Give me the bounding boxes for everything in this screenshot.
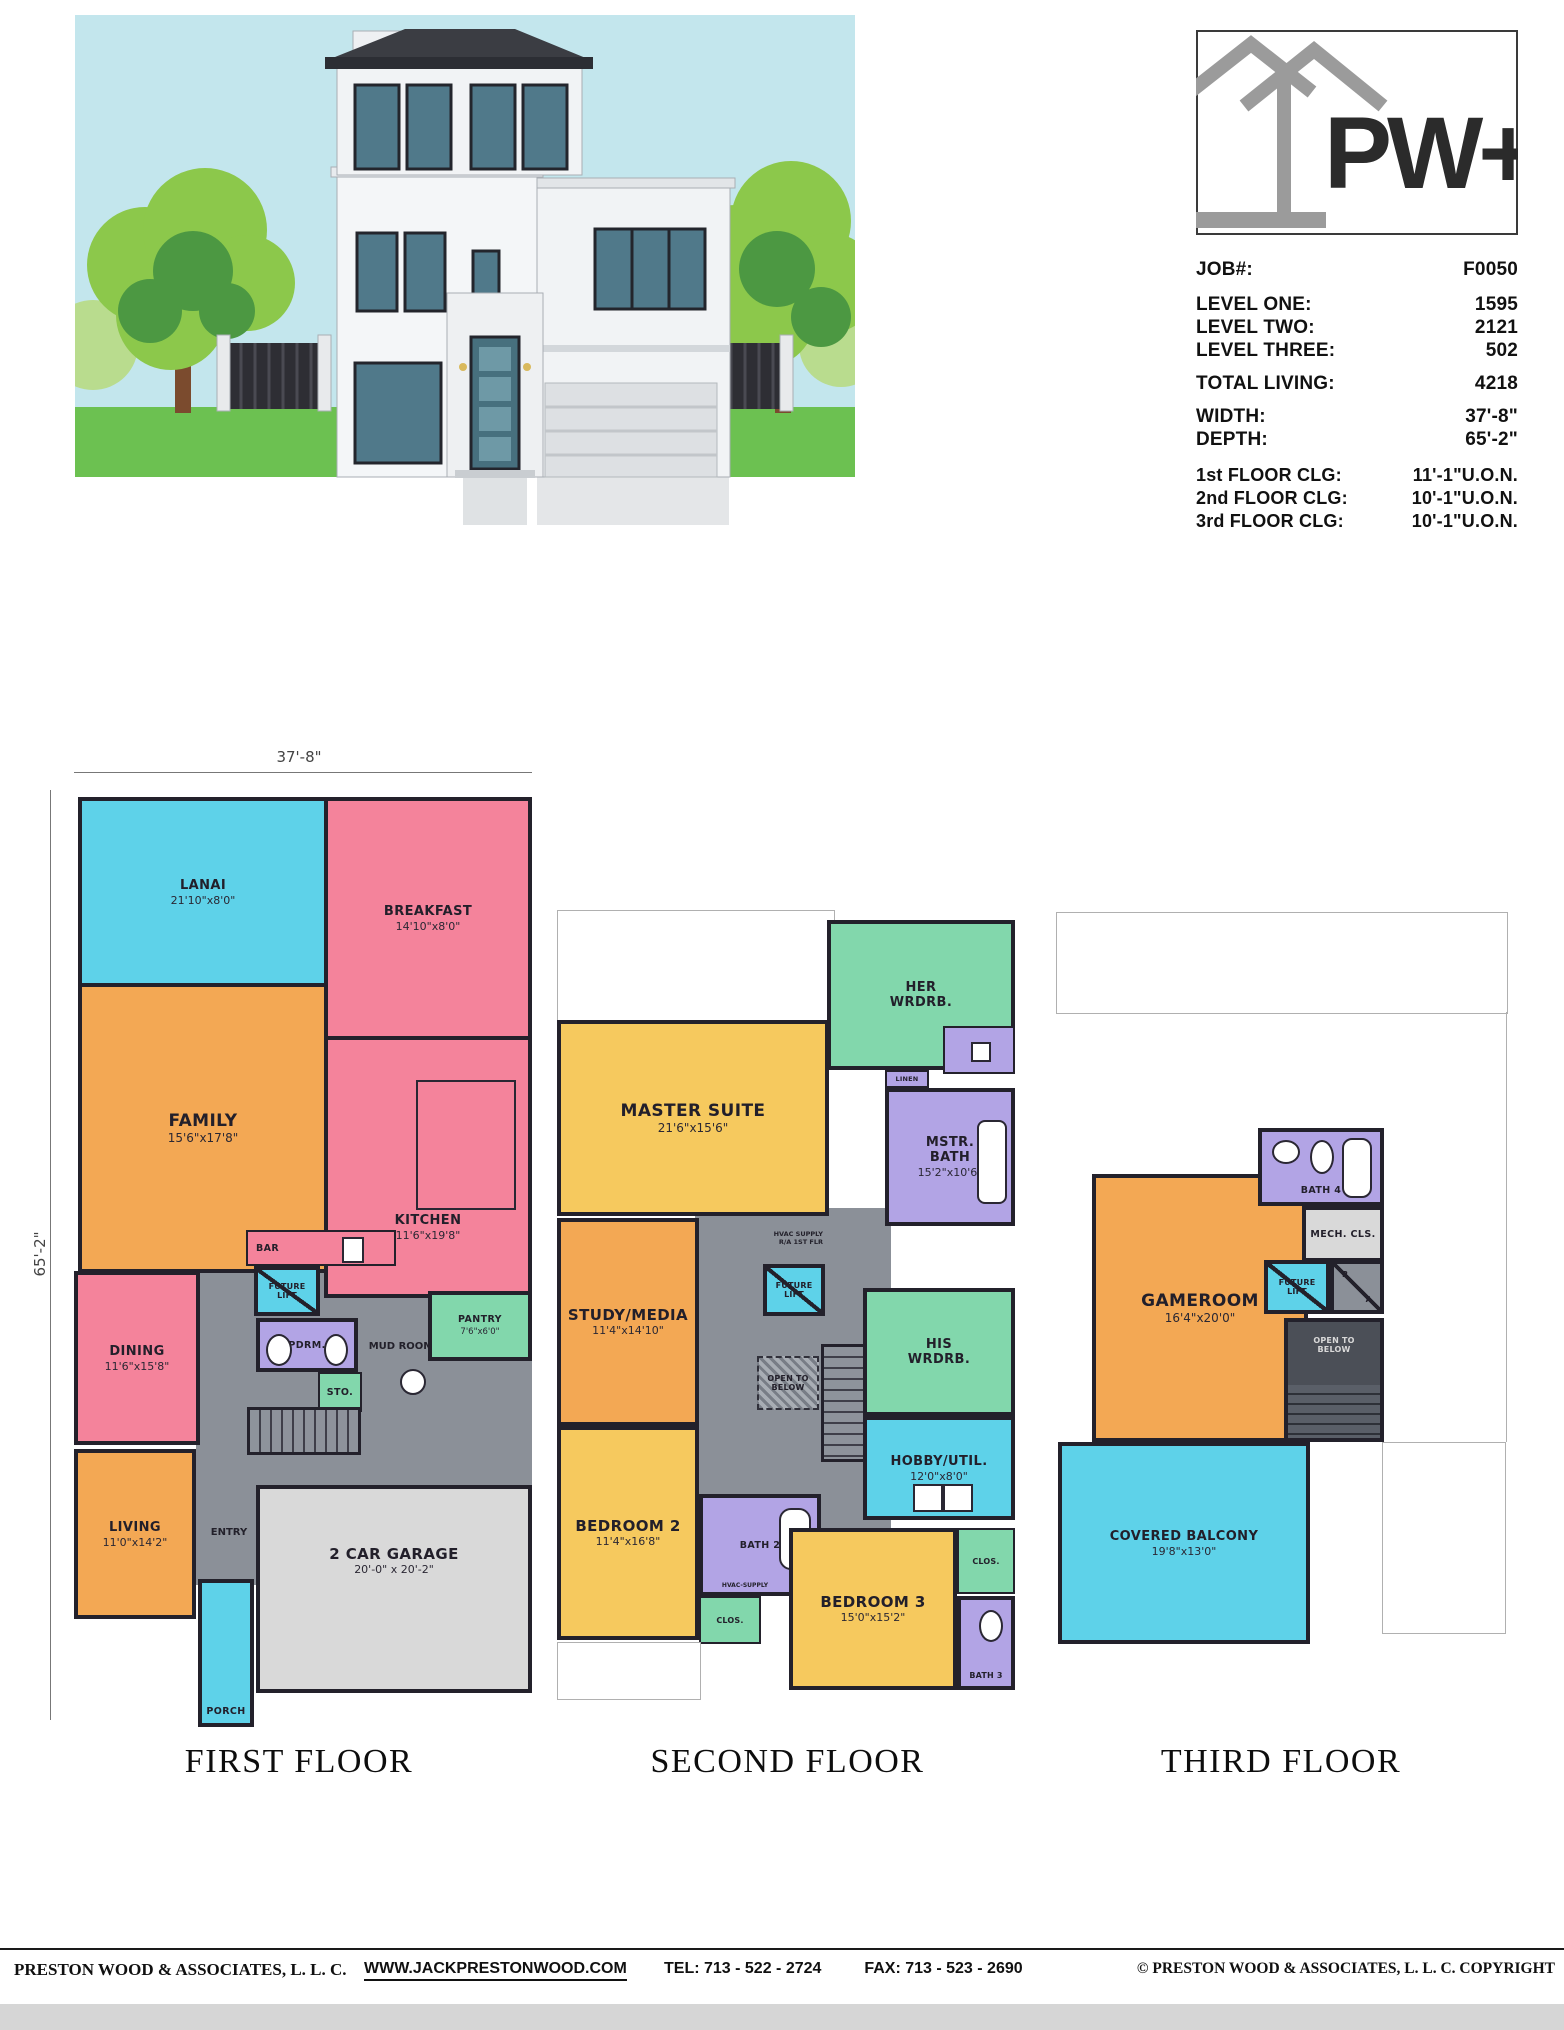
powder-sink [266, 1334, 292, 1366]
first-floor-depth-dimline [50, 790, 51, 1720]
footer-website-link[interactable]: WWW.JACKPRESTONWOOD.COM [364, 1960, 627, 1981]
room-future-lift-3: FUTURE LIFT [1264, 1260, 1330, 1314]
window-first [355, 363, 441, 463]
entry-label: ENTRY [200, 1527, 258, 1539]
level-two-row: LEVEL TWO:2121 [1196, 316, 1518, 339]
stair-treads [1288, 1385, 1380, 1438]
bath4-sink [1272, 1140, 1300, 1164]
room-covered-balcony: COVERED BALCONY 19'8"x13'0" [1058, 1442, 1310, 1644]
second-floor-plan: HER WRDRB. LINEN MSTR. BATH 15'2"x10'6" … [555, 908, 1020, 1703]
hvac-supply2-label: HVAC-SUPPLY [705, 1580, 785, 1592]
walkway [463, 477, 527, 525]
first-floor-width-dim: 37'-8" [60, 748, 538, 766]
job-info-block: JOB#:F0050 LEVEL ONE:1595 LEVEL TWO:2121… [1196, 258, 1518, 533]
footer-copyright: © PRESTON WOOD & ASSOCIATES, L. L. C. CO… [1050, 1960, 1555, 1978]
first-floor-plan: LANAI 21'10"x8'0" BREAKFAST 14'10"x8'0" … [60, 785, 538, 1735]
room-linen: LINEN [885, 1070, 929, 1088]
sconce-right [523, 363, 531, 371]
mstr-shower [943, 1026, 1015, 1074]
third-floor-plan: GAMEROOM 16'4"x20'0" BATH 4 MECH. CLS. F… [1050, 908, 1512, 1703]
room-bar: BAR [246, 1230, 396, 1266]
first-floor-depth-dim: 65'-2" [31, 1204, 49, 1304]
total-living-row: TOTAL LIVING:4218 [1196, 372, 1518, 395]
room-clos-right: CLOS. [957, 1528, 1015, 1594]
hvac-supply-label: HVAC SUPPLY R/A 1ST FLR [723, 1230, 823, 1246]
room-breakfast: BREAKFAST 14'10"x8'0" [324, 797, 532, 1040]
room-dining: DINING 11'6"x15'8" [74, 1271, 200, 1445]
footer-tel: TEL: 713 - 522 - 2724 [664, 1960, 821, 1977]
water-heater [400, 1369, 426, 1395]
depth-row: DEPTH:65'-2" [1196, 428, 1518, 451]
room-bath4: BATH 4 [1258, 1128, 1384, 1206]
room-bedroom3: BEDROOM 3 15'0"x15'2" [789, 1528, 957, 1690]
shower-drain [971, 1042, 991, 1062]
room-hobby-util: HOBBY/UTIL. 12'0"x8'0" [863, 1416, 1015, 1520]
third-clg-row: 3rd FLOOR CLG:10'-1"U.O.N. [1196, 510, 1518, 533]
third-floor-title: THIRD FLOOR [1050, 1742, 1512, 1782]
first-clg-row: 1st FLOOR CLG:11'-1"U.O.N. [1196, 464, 1518, 487]
room-garage: 2 CAR GARAGE 20'-0" x 20'-2" [256, 1485, 532, 1693]
kitchen-island [416, 1080, 516, 1210]
porch-roof-outline [557, 1642, 701, 1700]
room-clos-left: CLOS. [699, 1596, 761, 1644]
open-to-below-2: OPEN TO BELOW [757, 1356, 819, 1410]
room-future-lift-2: FUTURE LIFT [763, 1264, 825, 1316]
logo-text: PW+A [1324, 96, 1518, 210]
first-floor-title: FIRST FLOOR [60, 1742, 538, 1782]
powder-toilet [324, 1334, 348, 1366]
bath4-toilet [1310, 1140, 1334, 1174]
bath3-toilet [979, 1610, 1003, 1642]
room-lanai: LANAI 21'10"x8'0" [78, 797, 328, 987]
second-floor-title: SECOND FLOOR [555, 1742, 1020, 1782]
job-number-row: JOB#:F0050 [1196, 258, 1518, 281]
room-master-suite: MASTER SUITE 21'6"x15'6" [557, 1020, 829, 1216]
footer-phone: TEL: 713 - 522 - 2724 FAX: 713 - 523 - 2… [664, 1960, 1023, 1978]
mstr-tub [977, 1120, 1007, 1204]
footer-divider [0, 1948, 1564, 1950]
room-storage: STO. [318, 1372, 362, 1412]
room-mstr-bath: MSTR. BATH 15'2"x10'6" [885, 1088, 1015, 1226]
pwa-logo: PW+A [1196, 30, 1518, 236]
driveway [537, 477, 729, 525]
room-his-wrdrb: HIS WRDRB. [863, 1288, 1015, 1416]
room-bath3: BATH 3 [957, 1596, 1015, 1690]
room-powder: PDRM. [256, 1318, 358, 1372]
roof-edge-right [1506, 1012, 1507, 1442]
room-future-lift-1: FUTURE LIFT [254, 1266, 320, 1316]
return-air-shaft: R A [1330, 1260, 1384, 1314]
washer [913, 1484, 943, 1512]
footer-strip [0, 2004, 1564, 2030]
footer-fax: FAX: 713 - 523 - 2690 [864, 1960, 1022, 1977]
fence-left [217, 335, 331, 411]
bath4-tub [1342, 1138, 1372, 1198]
stairs-first [247, 1407, 361, 1455]
second-clg-row: 2nd FLOOR CLG:10'-1"U.O.N. [1196, 487, 1518, 510]
bar-sink [342, 1237, 364, 1263]
roof-outline-top [557, 910, 835, 1024]
room-mech-cls: MECH. CLS. [1302, 1206, 1384, 1262]
plan-sheet: PW+A JOB#:F0050 LEVEL ONE:1595 LEVEL TWO… [0, 0, 1564, 2030]
first-floor-width-dimline [74, 772, 532, 773]
mud-room-label: MUD ROOM [365, 1341, 437, 1353]
room-living: LIVING 11'0"x14'2" [74, 1449, 196, 1619]
level-three-row: LEVEL THREE:502 [1196, 339, 1518, 362]
roof-outline-bottom-right [1382, 1442, 1506, 1634]
dryer [943, 1484, 973, 1512]
roof-outline-top-3 [1056, 912, 1508, 1014]
open-to-below-3: OPEN TO BELOW [1284, 1318, 1384, 1442]
sconce-left [459, 363, 467, 371]
width-row: WIDTH:37'-8" [1196, 405, 1518, 428]
room-pantry: PANTRY 7'6"x6'0" [428, 1291, 532, 1361]
room-study-media: STUDY/MEDIA 11'4"x14'10" [557, 1218, 699, 1426]
elevation-rendering [75, 15, 855, 525]
footer-company: PRESTON WOOD & ASSOCIATES, L. L. C. [14, 1960, 347, 1980]
room-porch: PORCH [198, 1579, 254, 1727]
room-bedroom2: BEDROOM 2 11'4"x16'8" [557, 1426, 699, 1640]
level-one-row: LEVEL ONE:1595 [1196, 293, 1518, 316]
